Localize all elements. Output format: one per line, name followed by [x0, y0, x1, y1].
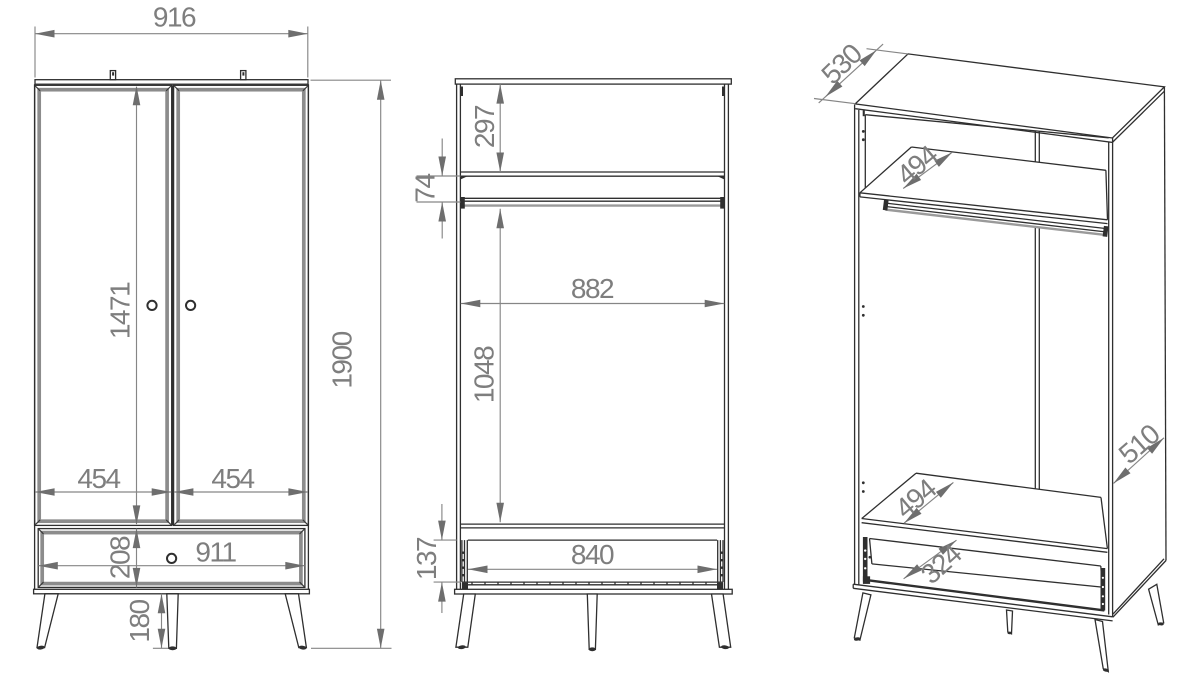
svg-text:137: 137	[411, 537, 442, 580]
svg-text:510: 510	[1113, 418, 1166, 470]
svg-text:454: 454	[211, 463, 254, 494]
svg-text:911: 911	[195, 537, 236, 568]
svg-text:530: 530	[815, 38, 868, 90]
svg-text:494: 494	[889, 473, 942, 524]
svg-text:1048: 1048	[469, 346, 500, 403]
svg-text:74: 74	[410, 174, 441, 203]
svg-text:1471: 1471	[105, 282, 136, 339]
svg-text:916: 916	[153, 2, 196, 33]
svg-text:324: 324	[915, 538, 968, 590]
svg-text:208: 208	[105, 536, 136, 579]
svg-text:494: 494	[891, 139, 944, 190]
svg-text:882: 882	[571, 273, 614, 304]
svg-text:1900: 1900	[327, 331, 358, 388]
svg-text:180: 180	[124, 599, 155, 642]
svg-text:297: 297	[469, 105, 500, 148]
svg-text:454: 454	[77, 463, 120, 494]
svg-text:840: 840	[571, 539, 614, 570]
